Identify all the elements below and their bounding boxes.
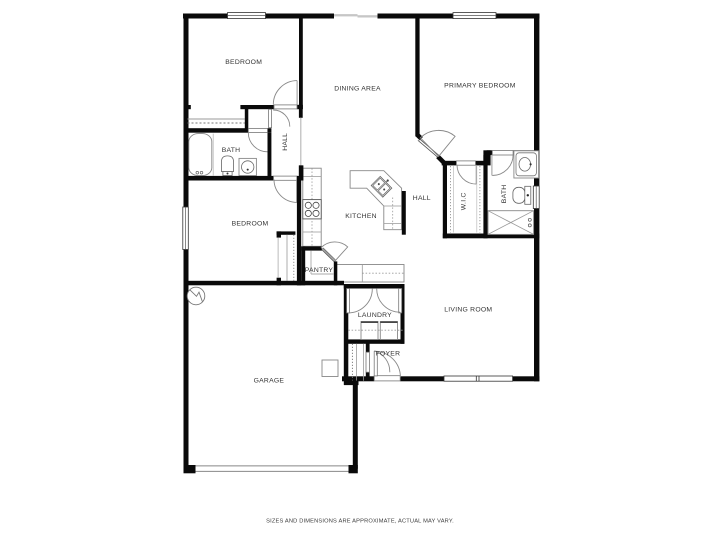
svg-text:HALL: HALL <box>282 133 289 151</box>
svg-text:KITCHEN: KITCHEN <box>345 213 377 220</box>
svg-text:LIVING ROOM: LIVING ROOM <box>444 306 492 313</box>
svg-text:BATH: BATH <box>222 147 241 154</box>
svg-text:HALL: HALL <box>413 195 431 202</box>
svg-text:SIZES AND DIMENSIONS ARE APPRO: SIZES AND DIMENSIONS ARE APPROXIMATE, AC… <box>266 518 454 524</box>
svg-text:LAUNDRY: LAUNDRY <box>358 312 392 319</box>
svg-text:PANTRY: PANTRY <box>305 267 334 274</box>
svg-text:BATH: BATH <box>501 185 508 204</box>
svg-text:DINING AREA: DINING AREA <box>334 86 381 93</box>
svg-text:GARAGE: GARAGE <box>254 378 285 385</box>
svg-text:BEDROOM: BEDROOM <box>225 59 262 66</box>
svg-text:W.I.C: W.I.C <box>461 192 468 210</box>
svg-text:FOYER: FOYER <box>376 350 401 357</box>
svg-text:BEDROOM: BEDROOM <box>232 221 269 228</box>
svg-text:PRIMARY BEDROOM: PRIMARY BEDROOM <box>444 83 516 90</box>
